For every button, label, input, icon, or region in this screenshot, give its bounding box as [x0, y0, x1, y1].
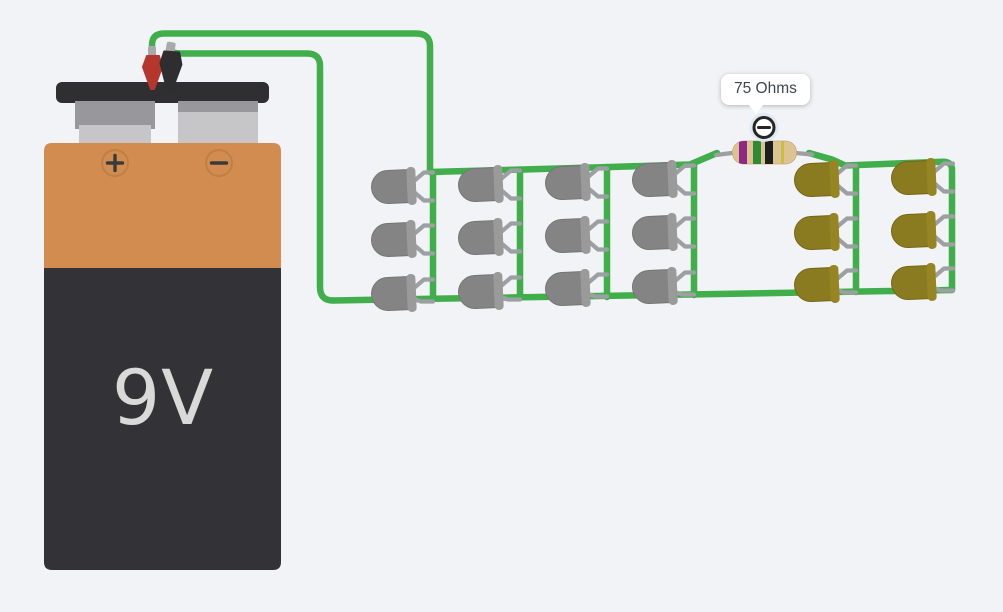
battery-9v[interactable]: 9V	[44, 82, 281, 570]
resistor-band-gold	[781, 140, 784, 165]
plus-icon	[102, 150, 128, 176]
led-yellow-col1-row1[interactable]	[794, 160, 856, 200]
battery-terminal-negative-base	[178, 112, 258, 143]
circuit-canvas[interactable]: 9V 75 Ohms	[0, 0, 1003, 612]
led-body	[371, 274, 417, 314]
led-body	[458, 272, 504, 312]
led-yellow-col2-row2[interactable]	[891, 211, 953, 251]
circuit-svg: 9V	[0, 0, 1003, 612]
led-gray-col2-row2[interactable]	[458, 218, 520, 258]
led-body	[458, 218, 504, 258]
led-body	[794, 213, 840, 253]
value-tooltip-text: 75 Ohms	[734, 80, 797, 97]
battery-body-top	[44, 143, 281, 268]
terminal-minus-badge-icon[interactable]	[750, 113, 779, 142]
led-gray-col4-row3[interactable]	[632, 267, 694, 307]
resistor-band-green	[753, 140, 761, 165]
led-gray-col3-row1[interactable]	[545, 163, 607, 203]
led-body	[545, 269, 591, 309]
led-yellow-col2-row3[interactable]	[891, 263, 953, 303]
led-body	[545, 216, 591, 256]
led-gray-col4-row2[interactable]	[632, 213, 694, 253]
value-tooltip: 75 Ohms	[721, 74, 810, 105]
led-gray-col3-row3[interactable]	[545, 269, 607, 309]
battery-voltage-label: 9V	[112, 353, 214, 442]
led-gray-col1-row3[interactable]	[371, 274, 433, 314]
battery-terminal-positive-top	[75, 101, 155, 129]
led-gray-col4-row1[interactable]	[632, 160, 694, 200]
led-body	[371, 220, 417, 260]
led-body	[891, 263, 937, 303]
led-body	[794, 160, 840, 200]
battery-terminal-positive-base	[79, 125, 151, 143]
led-gray-col1-row1[interactable]	[371, 167, 433, 207]
led-body	[632, 213, 678, 253]
battery-cap	[56, 82, 269, 103]
resistor-band-violet	[739, 140, 747, 165]
led-gray-col2-row3[interactable]	[458, 272, 520, 312]
resistor-band-black	[765, 140, 773, 165]
led-yellow-col2-row1[interactable]	[891, 158, 953, 198]
led-gray-col1-row2[interactable]	[371, 220, 433, 260]
led-yellow-col1-row2[interactable]	[794, 213, 856, 253]
led-body	[632, 267, 678, 307]
led-body	[794, 265, 840, 305]
led-gray-col3-row2[interactable]	[545, 216, 607, 256]
resistor-75-ohm[interactable]	[716, 140, 812, 165]
led-body	[891, 211, 937, 251]
led-body	[371, 167, 417, 207]
led-yellow-col1-row3[interactable]	[794, 265, 856, 305]
led-gray-col2-row1[interactable]	[458, 165, 520, 205]
